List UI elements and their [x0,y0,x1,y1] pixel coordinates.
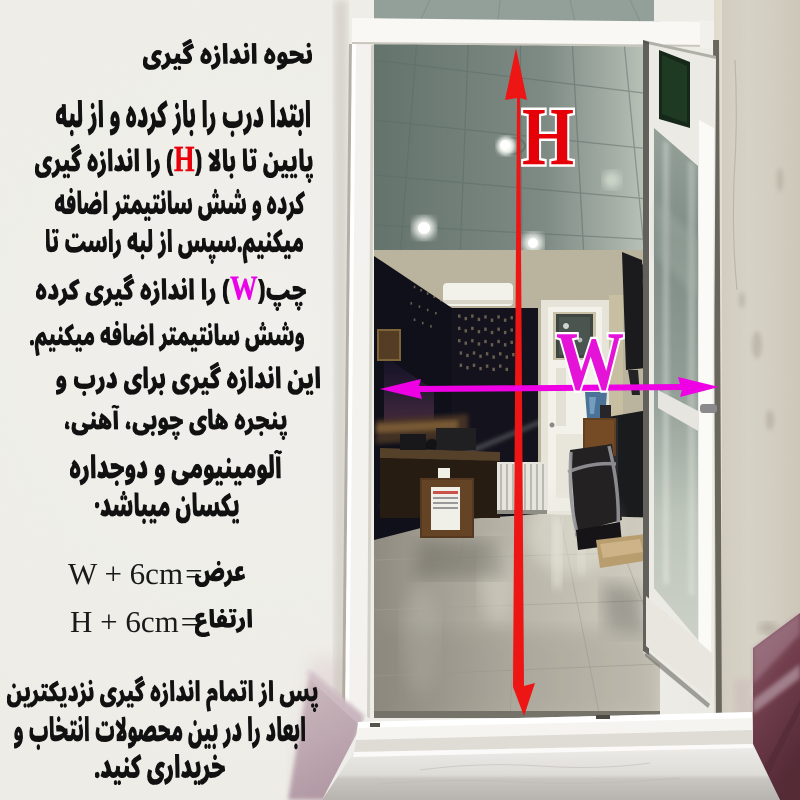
svg-text:H: H [522,90,574,182]
svg-text:W: W [556,315,624,408]
